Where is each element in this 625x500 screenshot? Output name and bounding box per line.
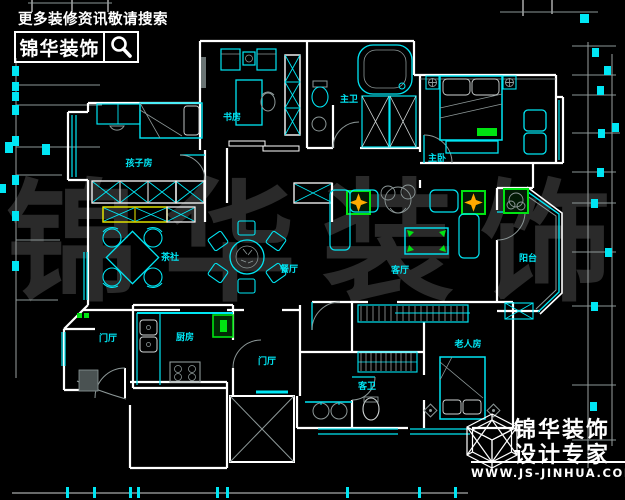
footer-website-url: WWW.JS-JINHUA.COM (471, 466, 625, 480)
room-label-master-bath: 主卫 (340, 93, 358, 105)
outer-walls (64, 41, 563, 468)
cad-floorplan-screenshot: 锦华装饰 (0, 0, 625, 500)
brand-name: 锦华装饰 (16, 33, 103, 61)
footer-brand-subtitle: 设计专家 (514, 437, 610, 469)
room-kitchen (77, 313, 233, 391)
room-master-bath (312, 45, 416, 147)
room-label-master-bedroom: 主卧 (428, 152, 446, 164)
room-tea (92, 181, 204, 287)
elevator-shaft (230, 396, 294, 462)
room-label-balcony: 阳台 (519, 252, 537, 264)
room-label-kitchen: 厨房 (176, 331, 194, 343)
room-living (330, 185, 485, 258)
room-master-bedroom (426, 76, 546, 154)
room-label-dining: 餐厅 (279, 263, 298, 275)
room-label-study: 书房 (223, 111, 241, 123)
room-label-living: 客厅 (390, 264, 409, 276)
magnifier-icon[interactable] (103, 33, 137, 61)
room-label-hall-center: 门厅 (258, 355, 276, 367)
room-label-tea-room: 茶社 (160, 251, 179, 263)
search-tagline: 更多装修资讯敬请搜索 (18, 8, 218, 29)
room-kids (97, 103, 202, 138)
footer-divider (471, 461, 625, 463)
room-label-kids-room: 孩子房 (125, 157, 152, 169)
room-label-hall-west: 门厅 (99, 332, 117, 344)
room-label-elderly: 老人房 (453, 338, 481, 350)
room-label-guest-bath: 客卫 (357, 380, 376, 392)
wireframe-cube-logo (465, 413, 519, 473)
brand-search-box[interactable]: 锦华装饰 (14, 31, 139, 63)
room-study (201, 49, 300, 135)
